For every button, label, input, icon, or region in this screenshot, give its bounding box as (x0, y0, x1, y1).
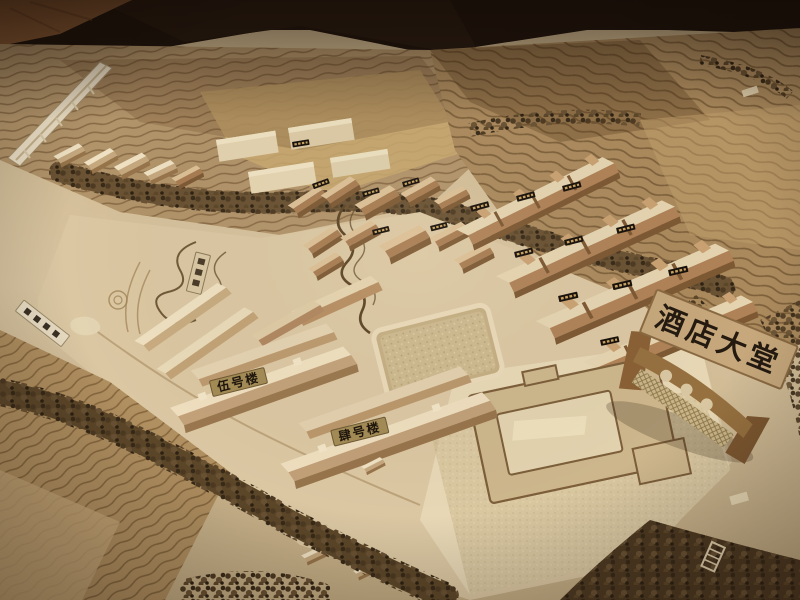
model-photo: 伍号楼 肆号楼 (0, 0, 800, 600)
model-photo-canvas: 伍号楼 肆号楼 (0, 0, 800, 600)
vignette-overlay (0, 0, 800, 600)
